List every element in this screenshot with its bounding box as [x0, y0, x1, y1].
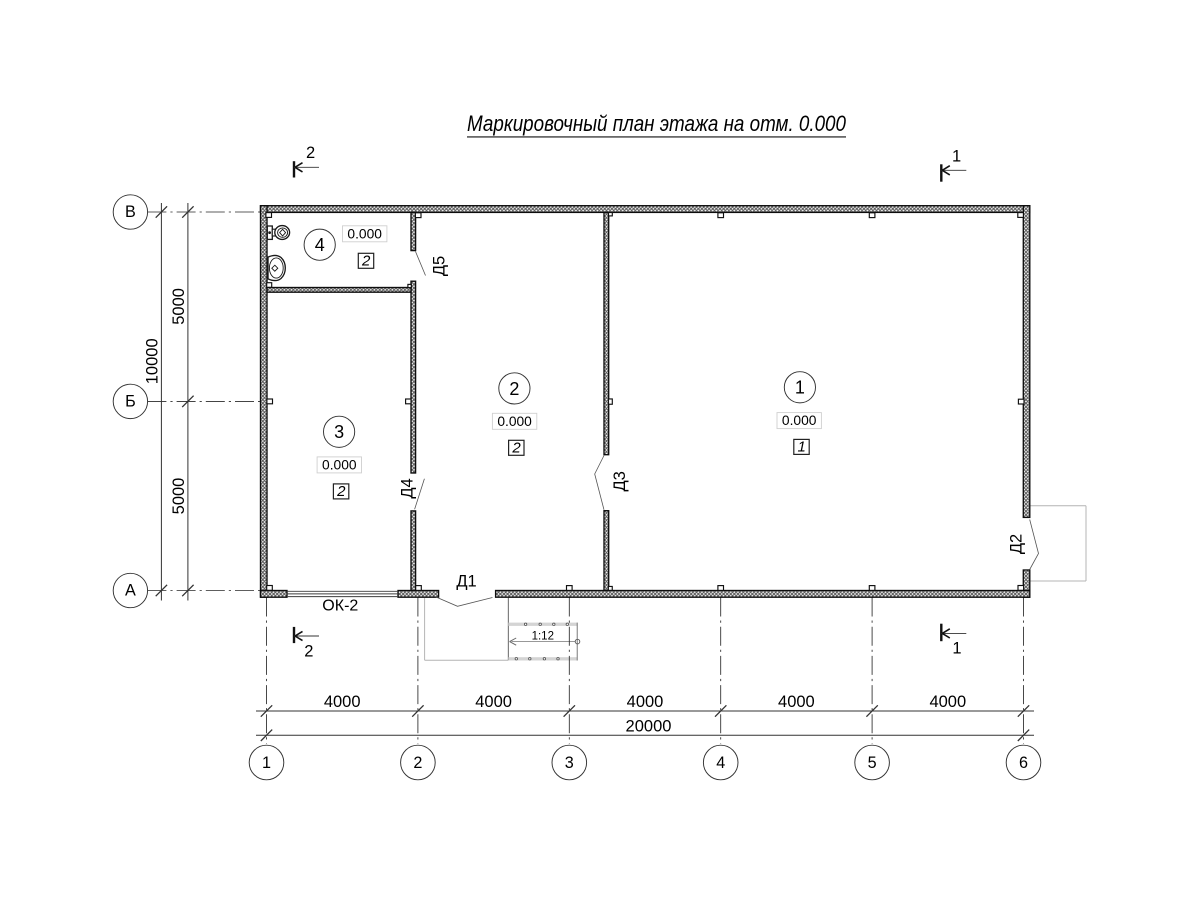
svg-text:4000: 4000 [778, 693, 815, 711]
svg-text:В: В [125, 203, 136, 221]
svg-text:2: 2 [304, 642, 313, 660]
svg-text:2: 2 [511, 439, 521, 456]
svg-text:0.000: 0.000 [322, 458, 357, 473]
svg-text:4000: 4000 [929, 693, 966, 711]
svg-text:Д3: Д3 [611, 471, 629, 491]
svg-text:1: 1 [952, 148, 961, 166]
svg-text:ОК-2: ОК-2 [322, 598, 358, 615]
svg-text:0.000: 0.000 [782, 413, 817, 428]
svg-text:0.000: 0.000 [497, 414, 532, 429]
svg-text:0.000: 0.000 [347, 226, 382, 241]
svg-text:2: 2 [361, 252, 371, 269]
svg-text:10000: 10000 [144, 338, 162, 384]
svg-text:20000: 20000 [626, 717, 672, 735]
svg-text:Б: Б [125, 392, 136, 410]
svg-text:6: 6 [1019, 754, 1028, 772]
svg-text:Д5: Д5 [430, 256, 448, 276]
svg-text:1: 1 [952, 640, 961, 658]
svg-text:4: 4 [315, 235, 325, 255]
svg-text:4000: 4000 [627, 693, 664, 711]
svg-text:А: А [125, 581, 136, 599]
svg-text:1: 1 [795, 378, 805, 398]
svg-text:1:12: 1:12 [532, 630, 554, 642]
svg-text:5000: 5000 [170, 288, 188, 325]
svg-text:5000: 5000 [170, 478, 188, 515]
svg-text:2: 2 [306, 144, 315, 162]
svg-text:Маркировочный план этажа на от: Маркировочный план этажа на отм. 0.000 [467, 111, 847, 136]
svg-text:Д4: Д4 [398, 478, 416, 498]
svg-text:3: 3 [565, 754, 574, 772]
svg-text:5: 5 [868, 754, 877, 772]
svg-text:2: 2 [336, 483, 346, 500]
svg-text:1: 1 [798, 439, 806, 456]
svg-text:2: 2 [413, 754, 422, 772]
svg-text:4000: 4000 [475, 693, 512, 711]
svg-text:1: 1 [262, 754, 271, 772]
svg-text:4000: 4000 [324, 693, 361, 711]
svg-text:Д2: Д2 [1007, 534, 1025, 554]
svg-text:Д1: Д1 [456, 573, 476, 591]
svg-text:4: 4 [716, 754, 725, 772]
svg-text:2: 2 [509, 379, 519, 399]
svg-text:3: 3 [334, 422, 344, 442]
